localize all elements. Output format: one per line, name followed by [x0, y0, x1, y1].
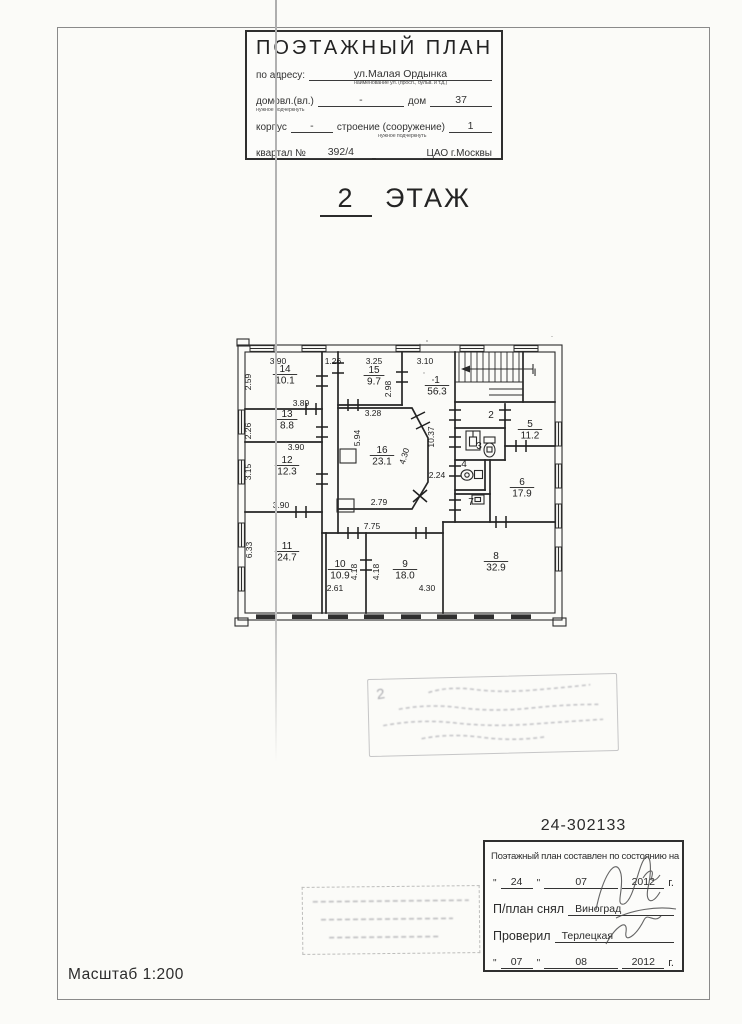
stair-direction-arrow-icon — [461, 366, 470, 373]
scan-fold-line — [275, 0, 277, 762]
quote-mark: " — [537, 878, 541, 889]
address-value: ул.Малая Ордынка наименование ул. (просп… — [309, 68, 492, 81]
quote-mark: " — [493, 958, 497, 969]
scanned-floor-plan-page: { "header": { "title": "ПОЭТАЖНЫЙ ПЛАН",… — [0, 0, 742, 1024]
address-label: по адресу: — [256, 70, 305, 81]
room-label: 4 — [461, 459, 467, 470]
dimension-label: 3.15 — [243, 463, 253, 480]
scale-label: Масштаб 1:200 — [68, 966, 184, 984]
room-label: 7 — [468, 497, 474, 508]
checker-label: Проверил — [493, 929, 551, 943]
dimension-label: 3.28 — [365, 408, 382, 418]
date2-suffix: г. — [668, 957, 674, 969]
room-label: 1124.7 — [275, 541, 299, 564]
certification-box: Поэтажный план составлен по состоянию на… — [483, 840, 684, 972]
document-number: 24-302133 — [483, 817, 684, 835]
svg-text:16: 16 — [376, 445, 388, 456]
room-label: 918.0 — [393, 559, 417, 582]
small-fixture-icon — [472, 495, 484, 504]
svg-text:5: 5 — [527, 419, 533, 430]
cert-date-checked: " 07 " 08 2012 г. — [493, 949, 674, 969]
ownership-value: - — [318, 94, 404, 107]
floor-number: 2 — [320, 183, 372, 217]
dimension-label: 2.98 — [383, 380, 393, 397]
svg-text:8: 8 — [493, 551, 499, 562]
svg-text:10.9: 10.9 — [330, 571, 350, 582]
surveyor-name: Виноград — [568, 903, 674, 916]
title-block: ПОЭТАЖНЫЙ ПЛАН по адресу: ул.Малая Ордын… — [245, 30, 503, 160]
stamp-scribble-lines — [368, 674, 618, 756]
address-hint: наименование ул. (просп., бульв. и т.д.) — [354, 80, 447, 86]
date1-year: 2012 — [622, 876, 664, 889]
svg-text:17.9: 17.9 — [512, 489, 532, 500]
svg-text:4: 4 — [461, 459, 467, 470]
date2-year: 2012 — [622, 956, 664, 969]
dimension-label: 4.30 — [419, 583, 436, 593]
room-label: 159.7 — [364, 365, 385, 388]
dimension-label: 2.59 — [243, 373, 253, 390]
dimension-label: 5.94 — [352, 429, 362, 446]
cert-statement: Поэтажный план составлен по состоянию на — [491, 851, 678, 862]
floor-plan-drawing: I 1410.1159.7156.3138.82511.231212.31623… — [231, 336, 573, 628]
svg-text:13: 13 — [281, 409, 293, 420]
room-label: 832.9 — [484, 551, 508, 574]
ownership-hint: нужное подчеркнуть — [256, 107, 304, 113]
floor-heading: 2 ЭТАЖ — [320, 183, 471, 217]
dimension-label: 3.90 — [270, 356, 287, 366]
room-label: 138.8 — [277, 409, 298, 432]
washbasin-icon — [461, 470, 483, 480]
date1-day: 24 — [501, 876, 533, 889]
dimension-label: 7.75 — [364, 521, 381, 531]
quote-mark: " — [493, 878, 497, 889]
page-title: ПОЭТАЖНЫЙ ПЛАН — [256, 37, 492, 60]
dimension-label: 3.10 — [417, 356, 434, 366]
building-hint: нужное подчеркнуть — [378, 133, 426, 139]
svg-text:18.0: 18.0 — [395, 571, 415, 582]
surveyor-row: П/план снял Виноград — [493, 895, 674, 916]
quarter-value: 392/4 — [310, 146, 372, 159]
dimension-label: 3.89 — [293, 398, 310, 408]
room-label: 156.3 — [425, 375, 449, 398]
dimension-label: 2.61 — [327, 583, 344, 593]
faint-stamp-upper: 2 — [367, 673, 619, 757]
dimension-label: 4.18 — [371, 563, 381, 580]
svg-text:9: 9 — [402, 559, 408, 570]
svg-text:24.7: 24.7 — [277, 553, 297, 564]
svg-text:11.2: 11.2 — [521, 431, 540, 442]
ownership-row: домовл.(вл.) нужное подчеркнуть - дом 37 — [256, 94, 492, 107]
door-opening-ticks — [296, 363, 526, 570]
house-label: дом — [408, 96, 426, 107]
address-row: по адресу: ул.Малая Ордынка наименование… — [256, 68, 492, 81]
toilet-icon — [484, 437, 495, 457]
quarter-blank — [376, 147, 423, 159]
date2-month: 08 — [544, 956, 618, 969]
dimension-label: 4.30 — [397, 446, 411, 465]
svg-text:12: 12 — [281, 455, 293, 466]
dimension-label: 2.79 — [371, 497, 388, 507]
block-value: - — [291, 120, 333, 133]
date1-month: 07 — [544, 876, 618, 889]
quote-mark: " — [537, 958, 541, 969]
district-value: ЦАО г.Москвы — [427, 148, 493, 159]
svg-text:9.7: 9.7 — [367, 377, 381, 388]
svg-text:8.8: 8.8 — [280, 421, 294, 432]
quarter-row: квартал № 392/4 ЦАО г.Москвы — [256, 146, 492, 159]
dimension-label: 4.18 — [349, 563, 359, 580]
svg-text:1: 1 — [434, 375, 440, 386]
svg-text:12.3: 12.3 — [277, 467, 297, 478]
building-row: корпус - строение (сооружение) нужное по… — [256, 120, 492, 133]
block-label: корпус — [256, 122, 287, 133]
house-value: 37 — [430, 94, 492, 107]
svg-text:3: 3 — [476, 441, 482, 452]
svg-text:11: 11 — [282, 541, 293, 552]
room-label: 1623.1 — [370, 445, 394, 468]
building-value: 1 — [449, 120, 492, 133]
svg-text:23.1: 23.1 — [372, 457, 392, 468]
dimension-label: 6.33 — [244, 541, 254, 558]
dimension-label: 3.90 — [288, 442, 305, 452]
room-label: 3 — [476, 441, 482, 452]
room-label: 1212.3 — [275, 455, 299, 478]
room-label: 2 — [488, 410, 494, 421]
cert-date-compiled: " 24 " 07 2012 г. — [493, 869, 674, 889]
svg-text:10.1: 10.1 — [275, 376, 295, 387]
svg-text:15: 15 — [368, 365, 380, 376]
date2-day: 07 — [501, 956, 533, 969]
stamp-scribble-lines — [303, 886, 480, 954]
svg-text:56.3: 56.3 — [427, 387, 447, 398]
dimension-label: 2.24 — [429, 470, 446, 480]
dimension-label: 1.26 — [325, 356, 342, 366]
svg-text:2: 2 — [488, 410, 494, 421]
surveyor-label: П/план снял — [493, 902, 564, 916]
plan-labels: 1410.1159.7156.3138.82511.231212.31623.1… — [243, 356, 542, 593]
dimension-label: 3.25 — [366, 356, 383, 366]
svg-text:6: 6 — [519, 477, 525, 488]
svg-text:32.9: 32.9 — [486, 563, 506, 574]
room-label: 511.2 — [518, 419, 542, 442]
ownership-label: домовл.(вл.) нужное подчеркнуть — [256, 96, 314, 107]
dimension-label: 2.26 — [243, 422, 253, 439]
date1-suffix: г. — [668, 877, 674, 889]
stairwell-label: I — [533, 367, 536, 379]
quarter-label: квартал № — [256, 148, 306, 159]
svg-text:7: 7 — [468, 497, 474, 508]
floor-word: ЭТАЖ — [385, 183, 471, 217]
faint-stamp-lower — [302, 885, 481, 955]
checker-name: Терлецкая — [555, 930, 674, 943]
dimension-label: 10.37 — [426, 426, 436, 448]
staircase — [455, 352, 533, 395]
room-label: 617.9 — [510, 477, 534, 500]
checker-row: Проверил Терлецкая — [493, 922, 674, 943]
vent-shaft-icons — [337, 449, 356, 512]
svg-text:10: 10 — [334, 559, 346, 570]
building-label: строение (сооружение) нужное подчеркнуть — [337, 122, 445, 133]
